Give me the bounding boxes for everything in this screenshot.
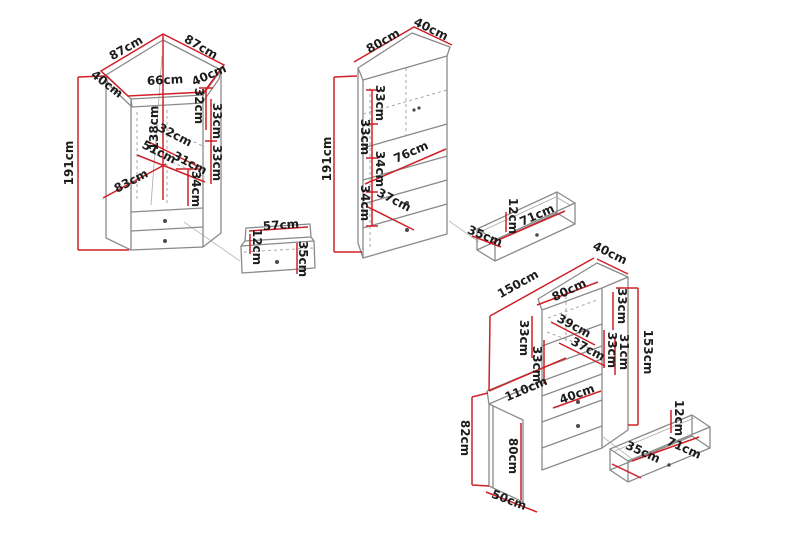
dim-label-33b: 33cm <box>210 145 224 181</box>
dim-label-12: 12cm <box>250 229 264 265</box>
dim-label-40-left: 40cm <box>88 67 125 100</box>
dim-label-87-left: 87cm <box>107 33 145 63</box>
drawer-knob <box>163 239 167 243</box>
dim-label-153: 153cm <box>641 330 655 375</box>
dim-label-40: 40cm <box>412 15 451 44</box>
dim-label-34a: 34cm <box>373 151 387 187</box>
dimension-line-191 <box>78 76 129 250</box>
tall-cabinet-drawer-detail: 12cm 71cm 35cm <box>466 192 575 261</box>
dim-label-57: 57cm <box>262 217 299 234</box>
diagram-canvas: 87cm 87cm 40cm 66cm 40cm 191cm 138cm 32c… <box>0 0 800 533</box>
dim-label-34b: 34cm <box>358 185 372 221</box>
dim-label-32v: 32cm <box>192 88 206 124</box>
dim-label-150: 150cm <box>495 267 541 301</box>
dim-label-35: 35cm <box>466 223 505 250</box>
dim-label-37: 37cm <box>375 186 414 215</box>
drawer-knob <box>163 219 167 223</box>
dim-label-33-left-upper: 33cm <box>517 320 531 356</box>
drawer-knob <box>275 260 279 264</box>
drawer-knob <box>667 463 671 467</box>
dimension-line-35 <box>612 464 641 478</box>
dim-label-33a: 33cm <box>373 85 387 121</box>
dim-label-87-right: 87cm <box>182 32 220 62</box>
dim-label-66: 66cm <box>146 72 183 88</box>
dimension-line-82 <box>472 393 489 486</box>
wardrobe-drawer-lines <box>131 208 203 231</box>
dim-label-12: 12cm <box>672 400 686 436</box>
desk-with-hutch: 150cm 80cm 40cm 33cm 31cm 153cm 39cm 37c… <box>458 239 655 513</box>
cabinet-left-panel <box>358 68 363 258</box>
dim-label-80-leg: 80cm <box>506 438 520 474</box>
drawer-knob <box>405 228 409 232</box>
drawer-knob <box>535 233 539 237</box>
dim-label-76: 76cm <box>392 138 431 166</box>
dim-label-33b: 33cm <box>358 119 372 155</box>
dim-label-33a: 33cm <box>210 103 224 139</box>
dim-label-33-interior: 33cm <box>605 332 619 368</box>
corner-wardrobe: 87cm 87cm 40cm 66cm 40cm 191cm 138cm 32c… <box>62 32 228 250</box>
tall-cabinet: 80cm 40cm 191cm 33cm 33cm 34cm 34cm 76cm… <box>320 15 452 258</box>
drawer-knob <box>576 424 580 428</box>
dim-label-33-right: 33cm <box>615 288 629 324</box>
desk-drawer-detail: 12cm 35cm 71cm <box>610 400 710 482</box>
wardrobe-left-panel <box>106 75 131 250</box>
dim-label-82: 82cm <box>458 420 472 456</box>
tower-front-face <box>542 288 602 470</box>
wardrobe-front-bottom <box>131 247 203 250</box>
dim-label-35: 35cm <box>296 241 310 277</box>
corner-wardrobe-drawer-detail: 57cm 12cm 35cm <box>241 217 315 277</box>
door-knob <box>417 106 420 109</box>
dim-label-191: 191cm <box>320 137 334 182</box>
door-knob <box>412 108 415 111</box>
dim-label-191: 191cm <box>62 141 76 186</box>
furniture-dimension-diagram: 87cm 87cm 40cm 66cm 40cm 191cm 138cm 32c… <box>0 0 800 533</box>
dim-label-34: 34cm <box>189 171 203 207</box>
